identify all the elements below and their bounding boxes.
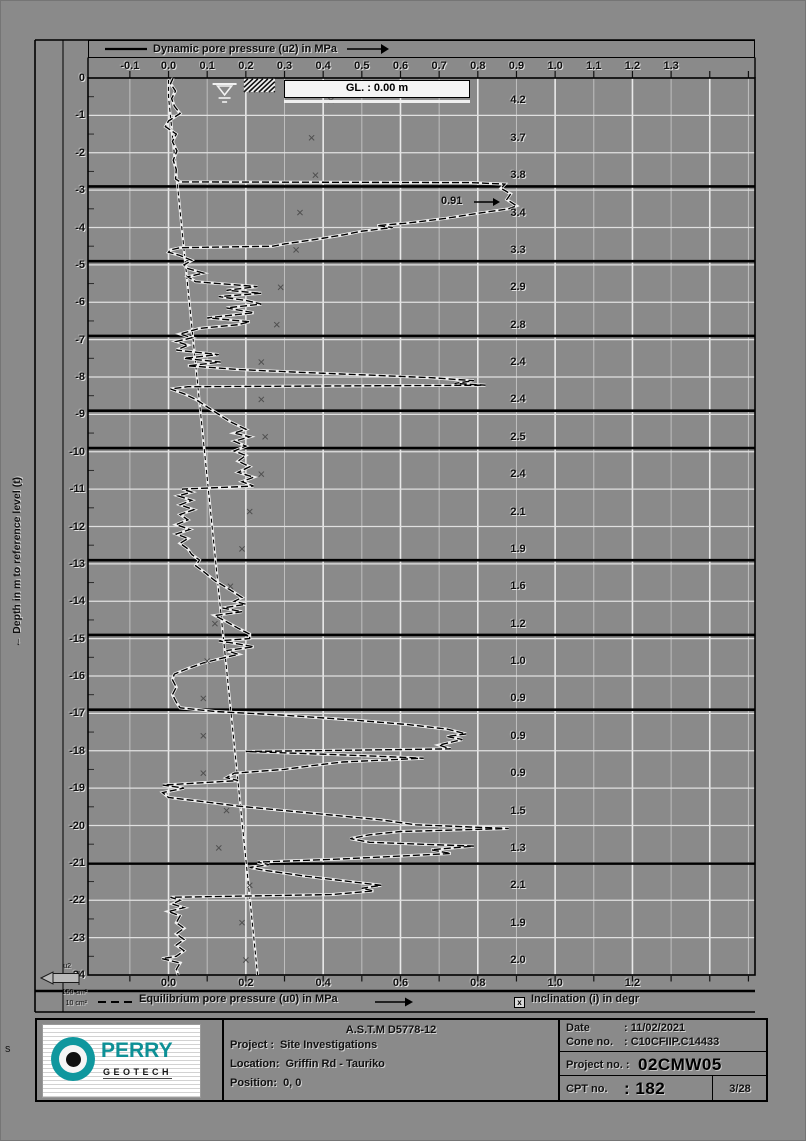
hatch-stroke	[274, 91, 275, 92]
bottom-tick-label: 0.2	[238, 977, 253, 989]
cone-sleeve-area: 150 cm²	[62, 989, 87, 996]
logo-perry-text: PERRY	[101, 1039, 173, 1063]
inclination-value: 3.7	[510, 132, 525, 144]
footer-title-block: PERRY GEOTECH A.S.T.M D5778-12 Project :…	[35, 1018, 768, 1102]
bottom-tick-label: 1.0	[547, 977, 562, 989]
depth-axis-title: ← Depth in m to reference level (t)	[11, 422, 23, 702]
project-no-value: 02CMW05	[638, 1055, 722, 1075]
depth-label: -22	[69, 894, 85, 906]
u0-line-sample-icon	[98, 996, 134, 1008]
ground-level-underline	[284, 100, 470, 103]
depth-label: -19	[69, 782, 85, 794]
annotation-arrow-icon	[472, 196, 502, 208]
inclination-value: 1.3	[510, 842, 525, 854]
page-number: 3/28	[729, 1083, 750, 1095]
location-value: Griffin Rd - Tauriko	[286, 1058, 385, 1070]
top-tick-label: 0.4	[316, 60, 331, 72]
depth-label: -6	[75, 296, 85, 308]
top-tick-label: 0.6	[393, 60, 408, 72]
logo-geotech-text: GEOTECH	[103, 1067, 172, 1079]
depth-label: 0	[79, 72, 85, 84]
top-tick-label: 0.8	[470, 60, 485, 72]
inclination-value: 2.9	[510, 281, 525, 293]
bottom-tick-label: 0.6	[393, 977, 408, 989]
footer-meta-cell: Date : 11/02/2021 Cone no. : C10CFIIP.C1…	[560, 1020, 768, 1100]
u0-legend-label: Equilibrium pore pressure (u0) in MPa	[139, 993, 338, 1005]
depth-label: -3	[75, 184, 85, 196]
position-value: 0, 0	[283, 1077, 301, 1089]
top-tick-label: 0.5	[354, 60, 369, 72]
depth-label: -9	[75, 408, 85, 420]
inclination-value: 1.6	[510, 580, 525, 592]
ground-level-box: GL. : 0.00 m	[284, 80, 470, 98]
top-tick-label: 1.0	[547, 60, 562, 72]
cpt-no-label: CPT no.	[566, 1083, 624, 1095]
cone-no-label: Cone no.	[566, 1036, 624, 1048]
footer-divider	[560, 1051, 768, 1052]
depth-label: -16	[69, 670, 85, 682]
inclination-marker-icon: x	[514, 997, 525, 1008]
astm-standard: A.S.T.M D5778-12	[224, 1024, 558, 1036]
inclination-value: 0.9	[510, 692, 525, 704]
peak-annotation: 0.91	[441, 195, 462, 207]
depth-label: -14	[69, 595, 85, 607]
bottom-tick-label: 1.2	[625, 977, 640, 989]
project-no-label: Project no. :	[566, 1059, 638, 1071]
depth-label: -11	[70, 483, 85, 495]
depth-label: -23	[69, 932, 85, 944]
top-tick-label: 0.7	[431, 60, 446, 72]
inclination-value: 0.9	[510, 767, 525, 779]
inclination-value: 2.4	[510, 393, 525, 405]
depth-label: -5	[75, 259, 85, 271]
depth-label: -13	[69, 558, 85, 570]
page-number-cell: 3/28	[712, 1076, 767, 1102]
bottom-tick-label: 0.4	[316, 977, 331, 989]
top-tick-label: 0.9	[509, 60, 524, 72]
top-tick-label: 1.3	[663, 60, 678, 72]
top-tick-label: -0.1	[120, 60, 139, 72]
inclination-value: 4.2	[510, 94, 525, 106]
footer-project-cell: A.S.T.M D5778-12 Project : Site Investig…	[224, 1020, 558, 1100]
inclination-value: 2.4	[510, 356, 525, 368]
depth-label: -18	[69, 745, 85, 757]
right-arrow-icon	[345, 42, 391, 56]
depth-label: -10	[69, 446, 85, 458]
cone-no-value: : C10CFIIP.C14433	[624, 1036, 719, 1048]
inclination-value: 3.8	[510, 169, 525, 181]
depth-label: -4	[75, 222, 85, 234]
top-tick-label: 0.3	[277, 60, 292, 72]
cone-u2-label: u2	[63, 963, 71, 970]
cone-tip-area: 10 cm²	[66, 1000, 87, 1007]
u2-legend-label: Dynamic pore pressure (u2) in MPa	[153, 43, 337, 55]
project-label: Project :	[230, 1039, 274, 1051]
top-tick-label: 0.1	[200, 60, 215, 72]
location-label: Location:	[230, 1058, 280, 1070]
water-table-icon	[218, 86, 232, 95]
company-logo: PERRY GEOTECH	[42, 1024, 201, 1098]
top-tick-label: 0.0	[161, 60, 176, 72]
top-tick-label: 1.1	[586, 60, 601, 72]
right-arrow-icon	[373, 996, 415, 1008]
date-value: : 11/02/2021	[624, 1022, 685, 1034]
u2-line-sample-icon	[103, 42, 153, 56]
position-label: Position:	[230, 1077, 277, 1089]
depth-label: -2	[75, 147, 85, 159]
date-label: Date	[566, 1022, 624, 1034]
cone-dimension-symbol: u2 150 cm² 10 cm²	[37, 963, 89, 1013]
inclination-value: 1.9	[510, 543, 525, 555]
perry-logo-icon	[51, 1037, 95, 1081]
depth-label: -15	[69, 633, 85, 645]
inclination-value: 3.4	[510, 207, 525, 219]
depth-label: -20	[69, 820, 85, 832]
inclination-value: 2.1	[510, 879, 525, 891]
cpt-no-value: : 182	[624, 1079, 665, 1099]
depth-label: -8	[75, 371, 85, 383]
bottom-legend-row: Equilibrium pore pressure (u0) in MPa In…	[35, 992, 755, 1012]
top-legend-bar: Dynamic pore pressure (u2) in MPa	[88, 40, 755, 58]
chart-canvas	[0, 0, 806, 1141]
inclination-value: 1.9	[510, 917, 525, 929]
inclination-value: 1.5	[510, 805, 525, 817]
depth-label: -1	[75, 109, 85, 121]
inclination-value: 2.4	[510, 468, 525, 480]
inclination-value: 2.8	[510, 319, 525, 331]
edge-letter: s	[5, 1043, 11, 1055]
inclination-value: 2.1	[510, 506, 525, 518]
depth-label: -21	[69, 857, 85, 869]
inclination-value: 2.0	[510, 954, 525, 966]
bottom-tick-label: 0.0	[161, 977, 176, 989]
top-tick-label: 0.2	[238, 60, 253, 72]
depth-label: -7	[75, 334, 85, 346]
inclination-value: 3.3	[510, 244, 525, 256]
cpt-report-page: { "header": { "legend_u2": "Dynamic pore…	[0, 0, 806, 1141]
inclination-legend-label: Inclination (i) in degr	[531, 993, 639, 1005]
inclination-value: 2.5	[510, 431, 525, 443]
depth-label: -12	[69, 521, 85, 533]
top-tick-label: 1.2	[625, 60, 640, 72]
depth-label: -17	[69, 707, 85, 719]
project-value: Site Investigations	[280, 1039, 377, 1051]
inclination-value: 0.9	[510, 730, 525, 742]
inclination-value: 1.0	[510, 655, 525, 667]
inclination-value: 1.2	[510, 618, 525, 630]
bottom-tick-label: 0.8	[470, 977, 485, 989]
